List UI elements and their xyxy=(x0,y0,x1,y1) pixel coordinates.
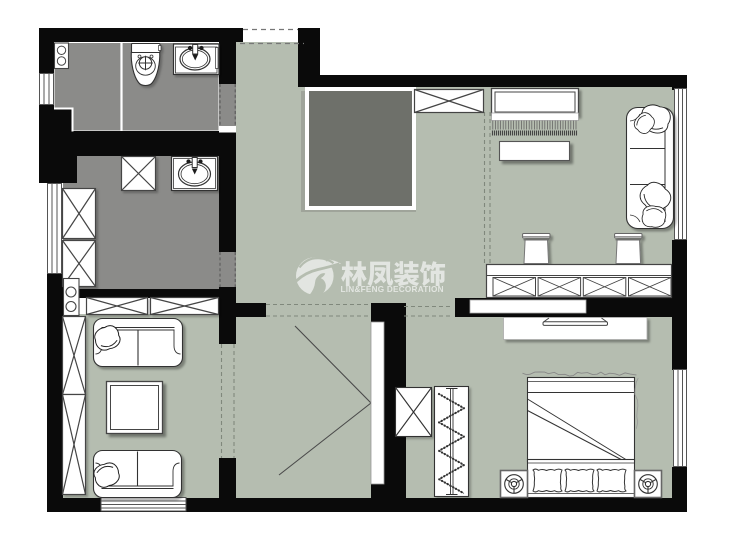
svg-text:LIN&FENG DECORATION: LIN&FENG DECORATION xyxy=(341,285,444,294)
